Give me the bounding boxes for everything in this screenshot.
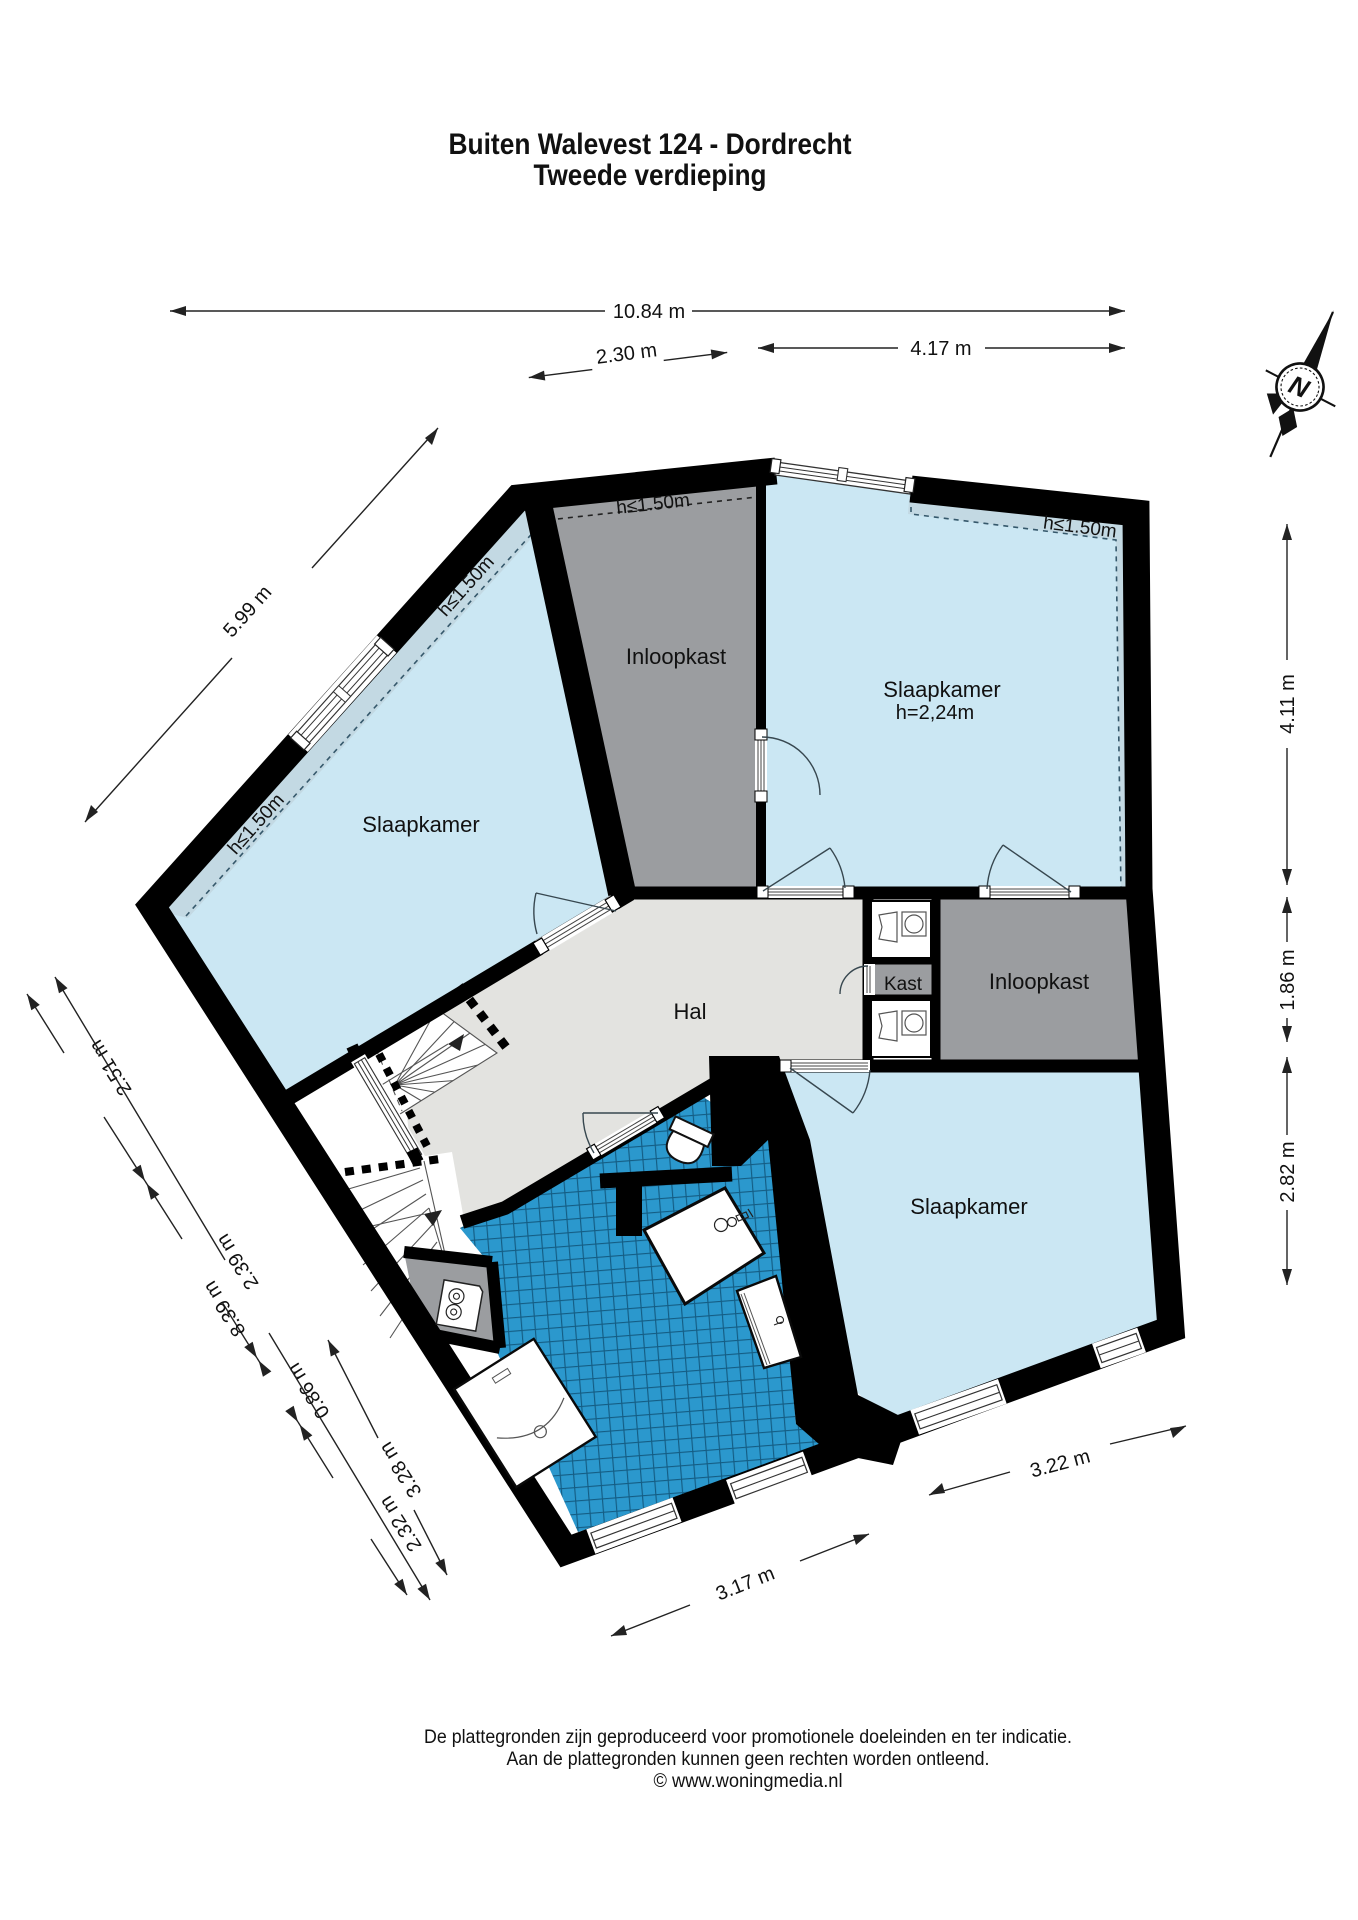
svg-text:2.82 m: 2.82 m [1277, 1141, 1299, 1202]
svg-text:Inloopkast: Inloopkast [626, 644, 726, 669]
svg-text:Aan de plattegronden kunnen ge: Aan de plattegronden kunnen geen rechten… [507, 1749, 990, 1770]
svg-text:4.17 m: 4.17 m [910, 338, 971, 360]
svg-text:Hal: Hal [673, 999, 706, 1024]
svg-text:De plattegronden zijn geproduc: De plattegronden zijn geproduceerd voor … [424, 1727, 1072, 1748]
svg-text:Buiten Walevest 124 - Dordrech: Buiten Walevest 124 - Dordrecht [449, 128, 852, 161]
svg-text:1.86 m: 1.86 m [1277, 949, 1299, 1010]
svg-text:Inloopkast: Inloopkast [989, 969, 1089, 994]
svg-text:h=2,24m: h=2,24m [896, 702, 974, 724]
svg-text:Tweede verdieping: Tweede verdieping [534, 159, 767, 192]
svg-text:10.84 m: 10.84 m [613, 301, 685, 323]
svg-text:Slaapkamer: Slaapkamer [362, 812, 479, 837]
svg-text:Slaapkamer: Slaapkamer [883, 677, 1000, 702]
svg-text:Kast: Kast [884, 974, 923, 995]
svg-text:© www.woningmedia.nl: © www.woningmedia.nl [654, 1771, 843, 1792]
svg-text:Slaapkamer: Slaapkamer [910, 1194, 1027, 1219]
svg-text:4.11 m: 4.11 m [1277, 674, 1299, 734]
